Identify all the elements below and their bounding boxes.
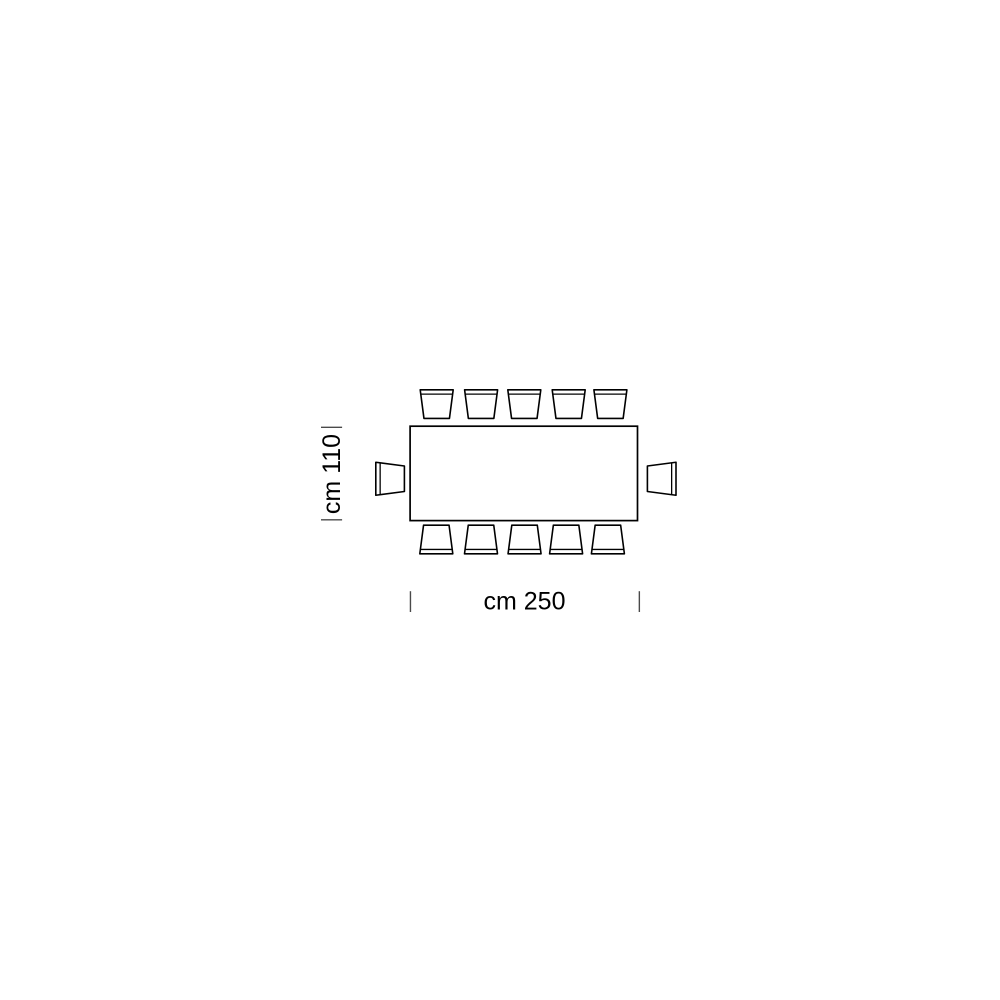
svg-text:cm 110: cm 110 (318, 434, 346, 514)
svg-text:cm 250: cm 250 (484, 587, 566, 615)
